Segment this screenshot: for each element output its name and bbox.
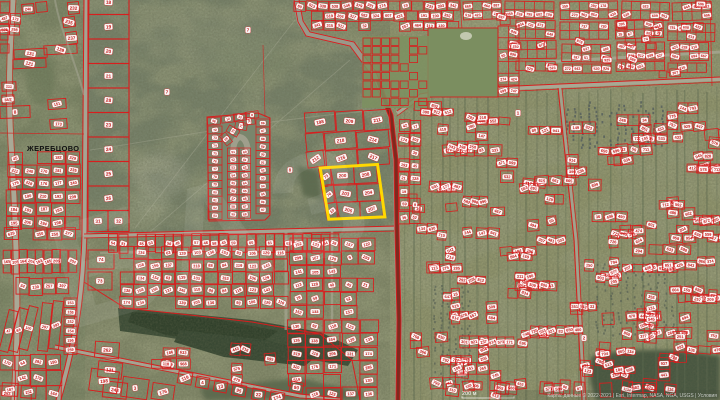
svg-text:259: 259 [67,348,74,353]
svg-text:111: 111 [6,84,13,89]
svg-text:149: 149 [572,125,580,130]
svg-text:118: 118 [163,361,170,366]
svg-text:130: 130 [438,23,445,28]
svg-text:Карта: данные © 2022-2021 | Es: Карта: данные © 2022-2021 | Esri, Interm… [547,392,717,399]
svg-text:171: 171 [329,363,337,369]
svg-text:22: 22 [256,392,262,397]
svg-text:18: 18 [106,0,112,6]
svg-text:359: 359 [562,4,568,9]
svg-text:937: 937 [661,361,669,366]
svg-text:532: 532 [504,174,512,179]
svg-text:133: 133 [312,309,319,314]
svg-text:412: 412 [689,165,697,171]
svg-text:21: 21 [106,74,112,80]
svg-text:86: 86 [261,121,265,125]
svg-text:596: 596 [698,2,704,6]
svg-text:887: 887 [493,4,499,8]
svg-text:1: 1 [517,111,520,117]
svg-text:218: 218 [479,115,487,121]
svg-text:968: 968 [180,361,188,366]
svg-text:130: 130 [32,284,40,290]
svg-text:433: 433 [674,134,682,140]
svg-text:137: 137 [347,391,355,396]
svg-text:667: 667 [701,54,707,59]
svg-text:28: 28 [105,98,111,105]
svg-text:400: 400 [575,327,583,332]
svg-text:228: 228 [681,45,687,50]
svg-text:519: 519 [326,13,334,18]
svg-text:424: 424 [511,77,517,81]
svg-text:925: 925 [604,58,610,62]
svg-text:923: 923 [643,4,649,8]
svg-text:615: 615 [538,178,546,184]
svg-text:2: 2 [583,336,586,342]
svg-text:173: 173 [55,121,63,126]
svg-text:395: 395 [618,22,624,27]
svg-text:523: 523 [550,66,556,70]
svg-text:609: 609 [652,14,658,18]
svg-text:250: 250 [512,44,518,49]
svg-text:559: 559 [705,232,713,237]
svg-text:694: 694 [691,54,697,59]
svg-text:464: 464 [415,23,422,28]
svg-text:73: 73 [213,136,217,140]
svg-text:73: 73 [656,31,661,36]
svg-text:100: 100 [432,13,439,18]
svg-text:292: 292 [459,277,467,283]
svg-text:781: 781 [670,26,676,30]
svg-text:285: 285 [453,266,461,271]
svg-text:795: 795 [526,12,532,17]
svg-text:178: 178 [600,4,606,8]
svg-text:19: 19 [106,24,112,30]
svg-text:270: 270 [571,13,577,18]
svg-text:545: 545 [648,316,656,321]
svg-text:51: 51 [584,56,588,60]
svg-text:301: 301 [461,339,469,345]
svg-text:182: 182 [55,155,63,160]
svg-text:35: 35 [618,32,622,36]
svg-text:257: 257 [46,283,54,288]
svg-text:843: 843 [687,262,695,268]
svg-text:929: 929 [603,66,609,71]
svg-text:8: 8 [251,113,253,117]
svg-text:851: 851 [665,262,673,267]
svg-text:274: 274 [500,77,506,82]
svg-text:359: 359 [507,12,513,17]
svg-text:164: 164 [20,258,28,263]
svg-text:138: 138 [311,338,319,343]
svg-text:682: 682 [536,12,542,17]
svg-text:311: 311 [517,274,524,279]
svg-text:476: 476 [714,347,720,353]
svg-text:191: 191 [421,13,428,18]
svg-text:607: 607 [385,13,392,18]
svg-text:171: 171 [506,339,514,344]
svg-text:24: 24 [106,147,112,153]
svg-text:399: 399 [569,169,576,174]
svg-text:47: 47 [6,329,11,334]
svg-text:195: 195 [11,220,19,225]
svg-text:573: 573 [497,339,505,345]
svg-text:351: 351 [571,304,579,309]
svg-text:737: 737 [581,24,587,29]
svg-text:23: 23 [106,122,112,128]
svg-text:578: 578 [700,167,708,172]
svg-text:604: 604 [672,287,680,292]
svg-text:209: 209 [707,297,715,302]
svg-text:385: 385 [459,370,467,375]
svg-text:668: 668 [465,4,471,9]
svg-text:538: 538 [332,4,339,9]
svg-text:552: 552 [490,118,498,124]
svg-text:131: 131 [347,351,355,356]
svg-text:198: 198 [100,378,109,384]
svg-text:996: 996 [704,13,710,18]
svg-text:509: 509 [488,304,496,310]
svg-text:941: 941 [553,128,560,133]
svg-text:7: 7 [166,90,169,96]
svg-text:423: 423 [475,13,481,17]
svg-text:647: 647 [445,294,452,299]
svg-text:828: 828 [705,153,713,158]
svg-text:246: 246 [25,7,31,11]
svg-text:237: 237 [68,35,76,40]
svg-text:943: 943 [574,67,580,71]
svg-text:726: 726 [610,239,618,245]
svg-text:560: 560 [695,217,703,223]
svg-text:200 м: 200 м [462,391,477,397]
svg-text:251: 251 [677,334,685,339]
svg-text:315: 315 [327,23,334,28]
svg-text:7: 7 [247,28,250,34]
svg-text:747: 747 [511,89,517,94]
svg-text:232: 232 [70,6,78,11]
svg-text:174: 174 [365,351,372,356]
svg-text:474: 474 [635,228,643,234]
svg-text:530: 530 [594,67,600,71]
svg-text:720: 720 [600,24,606,29]
svg-text:711: 711 [714,166,720,172]
svg-text:608: 608 [683,26,689,30]
svg-text:272: 272 [565,67,571,71]
